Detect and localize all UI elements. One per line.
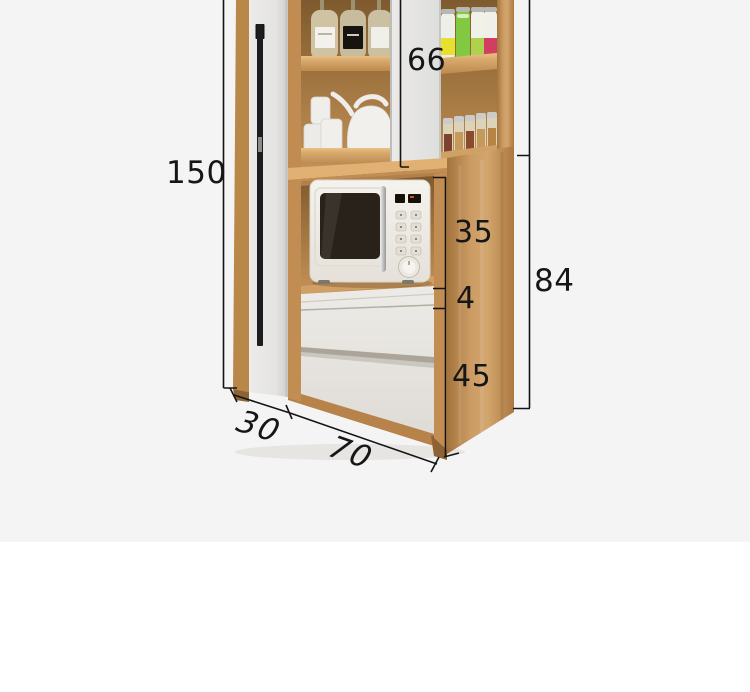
- drawers: [301, 286, 434, 434]
- dimension-label-total-height: 150: [166, 158, 227, 189]
- dimension-label-niche-height: 35: [454, 218, 493, 248]
- dimension-label-upper-height: 66: [407, 46, 446, 76]
- cabinet-illustration: [0, 0, 750, 542]
- decor-bottles: [311, 0, 392, 60]
- microwave: [310, 180, 432, 288]
- shelf-board: [299, 148, 391, 164]
- microwave-window: [320, 193, 380, 259]
- microwave-handle: [380, 186, 386, 272]
- product-detail-page: 150 66 35 4 45 84 30 70 多颜色展示: [0, 0, 750, 692]
- tall-door-cabinet: [233, 0, 288, 402]
- decor-beverage-cans: [441, 7, 497, 60]
- dimension-label-lower-height: 84: [534, 266, 574, 297]
- sliding-door-panel: [390, 0, 441, 171]
- shelf-board: [299, 56, 391, 71]
- dimension-photo-section: 150 66 35 4 45 84 30 70: [0, 0, 750, 542]
- dimension-label-drawer-height: 45: [452, 362, 491, 392]
- dimension-label-rail-height: 4: [456, 284, 476, 314]
